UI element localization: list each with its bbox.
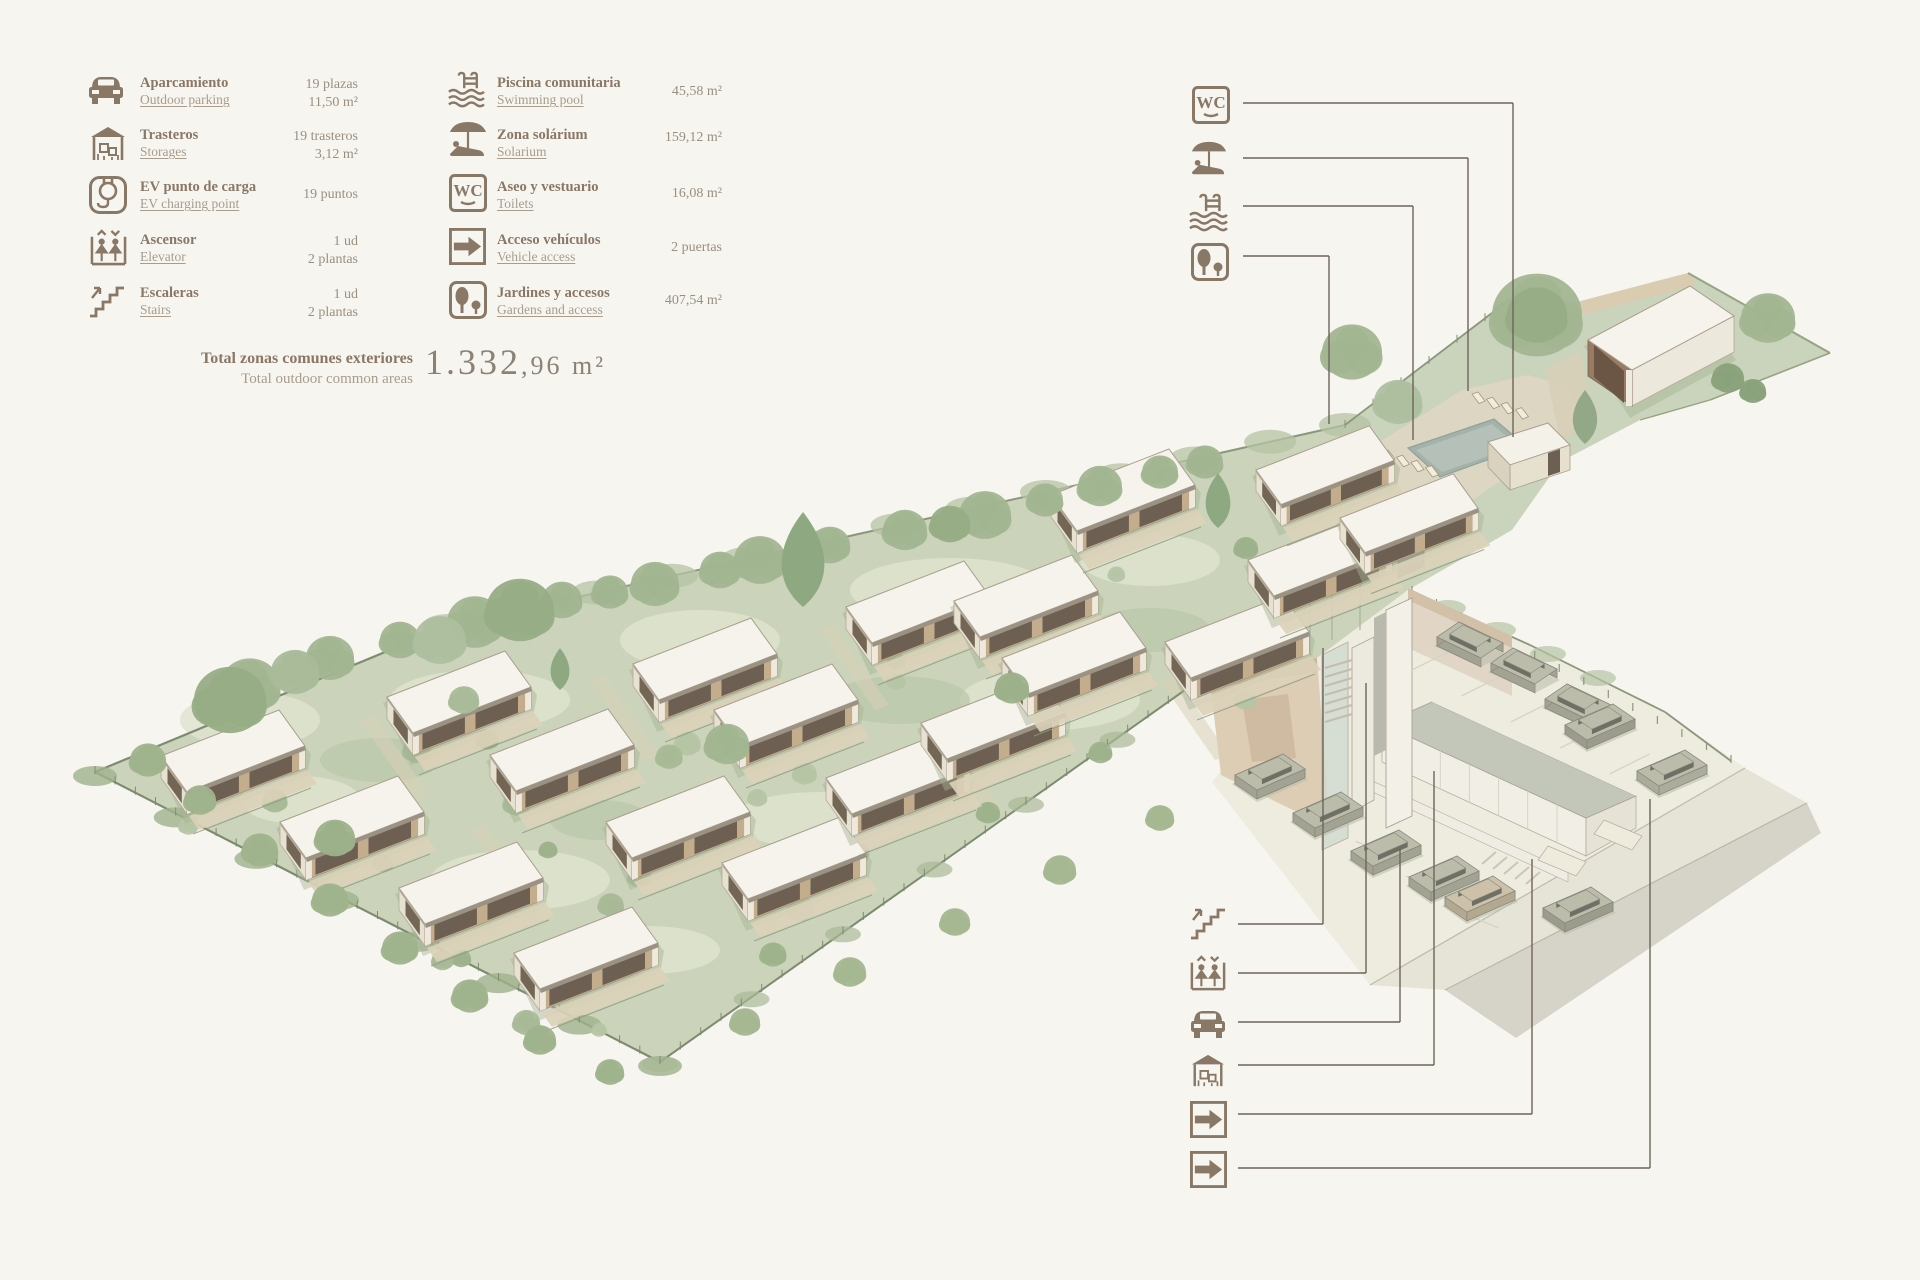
svg-text:WC: WC xyxy=(1196,93,1225,112)
svg-text:WC: WC xyxy=(453,181,482,200)
